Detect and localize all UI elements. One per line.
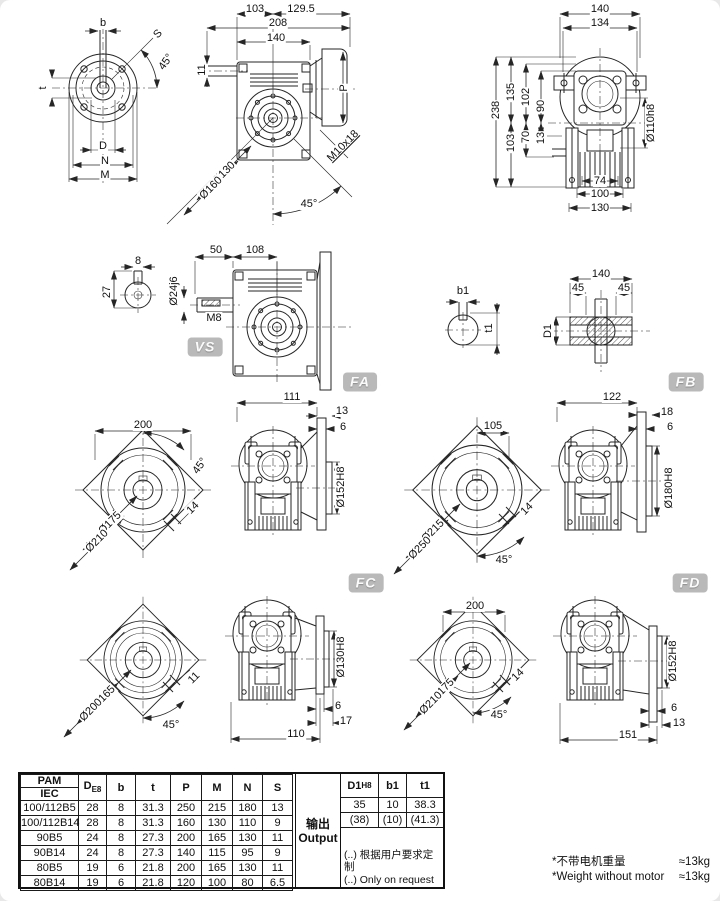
- dim-label: 6: [670, 702, 678, 714]
- dim-label: 74: [593, 175, 607, 187]
- output-cell: (38): [341, 813, 379, 828]
- col-header-s: S: [263, 775, 293, 801]
- weight-notes: *不带电机重量≈13kg *Weight without motor≈13kg: [552, 855, 710, 884]
- output-cell: 35: [341, 798, 379, 813]
- output-section: 输出 Output D1H8 b1 t1 35 10 38.3 (38) (10…: [295, 774, 443, 887]
- col-header-b: b: [107, 775, 136, 801]
- fig-fc-side: [225, 596, 341, 743]
- dim-label: Ø180H8: [663, 467, 675, 510]
- output-cell: 38.3: [407, 798, 443, 813]
- col-header-p: P: [171, 775, 202, 801]
- table-row: 80B1419621.8120100806.5: [21, 876, 293, 891]
- dim-label: 45°: [490, 709, 509, 721]
- output-cell: (10): [379, 813, 407, 828]
- view-badge-fd: FD: [673, 574, 708, 593]
- dim-label: 130: [590, 202, 610, 214]
- dim-label: M8: [205, 312, 222, 324]
- dim-label: 135: [505, 82, 517, 102]
- dim-label: 18: [660, 406, 674, 418]
- dim-label: 100: [590, 188, 610, 200]
- dim-label: 6: [334, 700, 342, 712]
- col-header-m: M: [202, 775, 233, 801]
- dim-label: 208: [268, 17, 288, 29]
- dim-label: 45°: [162, 719, 181, 731]
- dim-label: P: [338, 83, 350, 92]
- dim-label: 140: [590, 3, 610, 15]
- dim-label: D1: [542, 323, 554, 339]
- dim-label: 238: [490, 100, 502, 120]
- dim-label: t1: [483, 322, 495, 333]
- dim-label: 200: [465, 600, 485, 612]
- table-row: 90B524827.320016513011: [21, 831, 293, 846]
- dim-label: 6: [339, 421, 347, 433]
- dim-label: Ø110h8: [645, 103, 657, 143]
- table-row: 100/112B528831.325021518013: [21, 801, 293, 816]
- dim-label: 111: [283, 391, 302, 403]
- dimension-table: PAMIEC DE8 b t P M N S 100/112B528831.32…: [18, 772, 445, 889]
- dim-label: 13: [672, 717, 686, 729]
- dim-label: t: [37, 85, 49, 90]
- dim-label: 151: [618, 729, 638, 741]
- dim-label: 122: [602, 391, 622, 403]
- dim-label: 102: [520, 87, 532, 107]
- fig-fa-side: [231, 403, 343, 536]
- dim-label: b1: [456, 285, 470, 297]
- output-grid: D1H8 b1 t1 35 10 38.3 (38) (10) (41.3) (…: [341, 774, 443, 887]
- output-label: 输出 Output: [296, 774, 341, 887]
- dim-label: 45: [617, 282, 631, 294]
- dim-label: Ø130H8: [335, 636, 347, 679]
- col-header-d1: D1H8: [341, 774, 379, 798]
- dim-label: 11: [196, 63, 208, 76]
- fig-fb-side: [551, 403, 663, 536]
- col-header-b1: b1: [379, 774, 407, 798]
- dim-label: 90: [535, 99, 547, 113]
- view-badge-fc: FC: [349, 574, 384, 593]
- dim-label: 8: [134, 255, 142, 267]
- dim-label: 134: [590, 17, 610, 29]
- dim-label: 17: [339, 715, 353, 727]
- dim-label: 70: [520, 130, 532, 144]
- view-badge-vs: VS: [188, 338, 223, 357]
- fig-rear-view: [496, 14, 656, 212]
- dim-label: 6: [666, 421, 674, 433]
- on-request-note: (..) 根据用户要求定制 (..) Only on request: [341, 828, 443, 887]
- dim-label: 50: [209, 244, 223, 256]
- gearbox-dimension-sheet: b t S 45° D N M 103 129.5 208 140 11 P M…: [0, 0, 720, 901]
- dim-label: 13: [535, 131, 547, 145]
- col-header-n: N: [233, 775, 263, 801]
- dim-label: Ø152H8: [667, 640, 679, 683]
- fig-hollow-shaft: [550, 279, 650, 372]
- col-header-t: t: [136, 775, 171, 801]
- dim-label: 13: [335, 405, 349, 417]
- output-cell: 10: [379, 798, 407, 813]
- dim-label: 103: [245, 3, 265, 15]
- dim-label: Ø24j6: [168, 275, 180, 306]
- dim-label: N: [100, 155, 110, 167]
- dim-label: 140: [266, 32, 286, 44]
- table-row: 100/112B1428831.31601301109: [21, 816, 293, 831]
- dim-label: Ø152H8: [335, 466, 347, 509]
- dim-label: b: [99, 17, 107, 29]
- table-row: 80B519621.820016513011: [21, 861, 293, 876]
- view-badge-fb: FB: [669, 373, 704, 392]
- fig-fd-side: [553, 596, 670, 744]
- table-row: 90B1424827.3140115959: [21, 846, 293, 861]
- col-header-t1: t1: [407, 774, 443, 798]
- fig-key-section: [114, 267, 156, 313]
- weight-note-cn: *不带电机重量≈13kg: [552, 855, 710, 870]
- pam-iec-table: PAMIEC DE8 b t P M N S 100/112B528831.32…: [20, 774, 293, 891]
- dim-label: 27: [101, 285, 113, 299]
- view-badge-fa: FA: [343, 373, 377, 392]
- dim-label: 140: [591, 268, 611, 280]
- dim-label: 129.5: [286, 3, 316, 15]
- output-cell: (41.3): [407, 813, 443, 828]
- dim-label: 200: [133, 419, 153, 431]
- dim-label: M: [99, 169, 110, 181]
- dim-label: 45°: [495, 554, 514, 566]
- col-header-pam-iec: PAMIEC: [21, 775, 79, 801]
- dim-label: 103: [505, 133, 517, 153]
- col-header-d: DE8: [79, 775, 107, 801]
- dim-label: 45: [571, 282, 585, 294]
- weight-note-en: *Weight without motor≈13kg: [552, 870, 710, 885]
- dim-label: 110: [286, 728, 306, 740]
- dim-label: 108: [245, 244, 265, 256]
- dim-label: 105: [483, 420, 503, 432]
- dim-label: 45°: [300, 198, 319, 210]
- dim-label: D: [98, 140, 108, 152]
